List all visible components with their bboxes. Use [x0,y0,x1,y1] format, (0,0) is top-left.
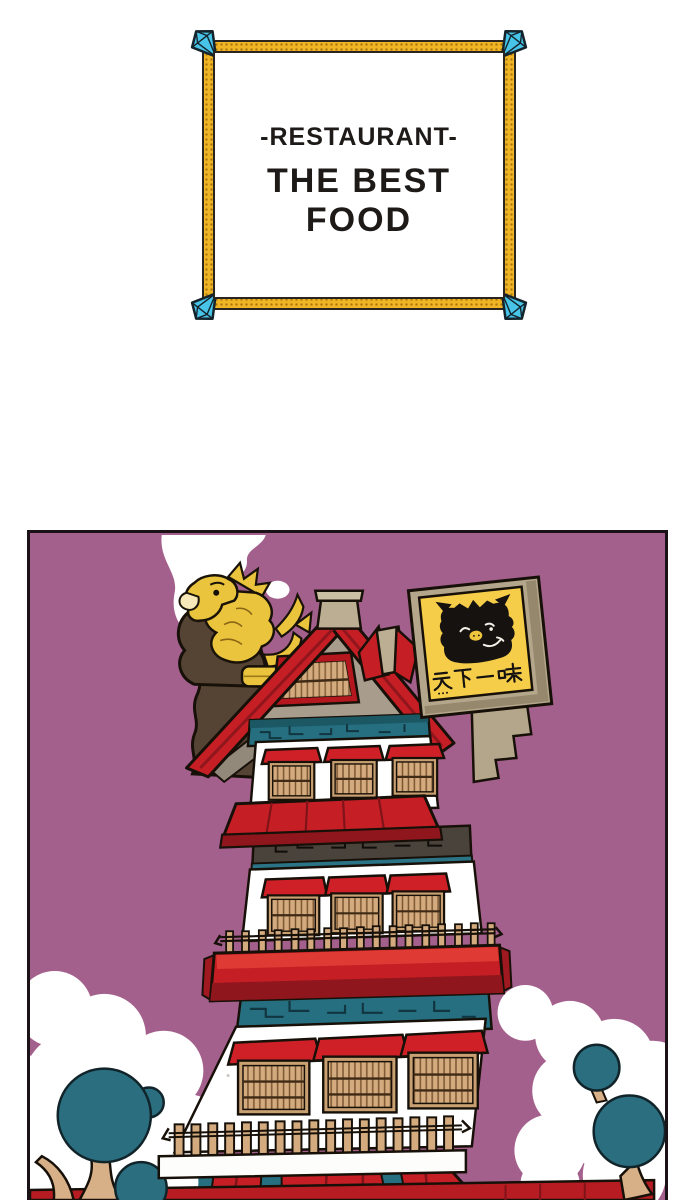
title-sign-frame: -RESTAURANT- THE BEST FOOD [202,40,516,310]
balcony-slab [202,945,511,1001]
window [262,877,327,935]
window [400,1031,487,1109]
window [387,873,450,931]
chimney-cap [315,591,363,629]
window [313,1035,408,1113]
ledge [159,1150,466,1178]
comic-panel: 天下一味 [27,530,668,1200]
skirt-roof [220,796,442,848]
window [386,744,444,796]
window [262,748,321,800]
restaurant-sign: 天下一味 [408,577,551,717]
comic-page: -RESTAURANT- THE BEST FOOD [0,0,700,1200]
restaurant-subtitle: -RESTAURANT- [215,123,503,152]
window [228,1039,321,1115]
title-sign-inner: -RESTAURANT- THE BEST FOOD [213,51,505,299]
window [324,746,383,798]
restaurant-tower-scene: 天下一味 [30,533,665,1200]
window [325,875,388,933]
page-title: THE BEST FOOD [215,162,503,240]
